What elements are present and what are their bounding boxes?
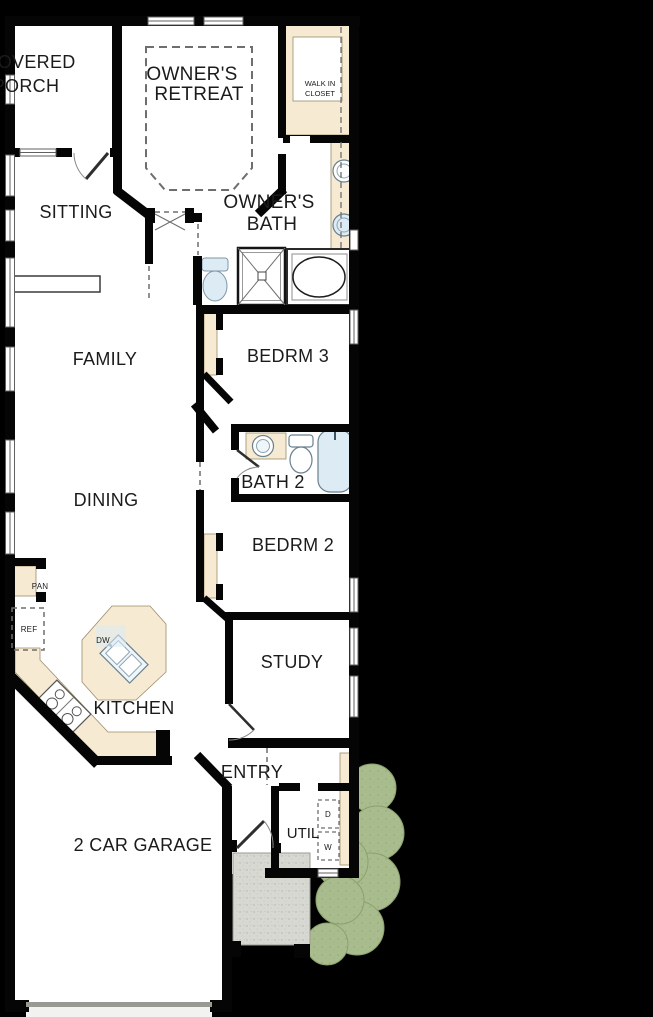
wall-right-upper [349, 16, 359, 310]
wall-retreat-left [113, 148, 122, 193]
wall-entry-top [228, 738, 359, 748]
bathtub-fixture [287, 249, 352, 305]
wall-util-left [271, 786, 279, 876]
wic-door-opening [290, 136, 310, 143]
room-label-covered-porch-line2: PORCH [0, 76, 59, 96]
wall-bath2-left-lower [231, 478, 239, 502]
room-label-owners-retreat-line1: OWNER'S [146, 64, 237, 85]
porch-step-left [227, 941, 241, 957]
wall-entry-bottom-left [222, 840, 237, 852]
media-console [12, 276, 100, 292]
room-label-owners-bath-line2: BATH [247, 214, 297, 235]
fixture-label-washer: W [324, 843, 332, 852]
wall-util-bottom [265, 868, 359, 878]
wall-wic-left-lower [278, 154, 286, 194]
wall-entry-bottom-right [271, 843, 281, 853]
wall-wic-left [278, 16, 286, 138]
wall-study-left [225, 612, 233, 704]
toilet-fixture [202, 258, 228, 301]
bush [306, 923, 348, 965]
wall-bedroom3-closet-top [216, 310, 223, 330]
room-label-owners-bath-line1: OWNER'S [223, 192, 314, 213]
floor-plan-drawing: COVERED PORCH OWNER'S RETREAT WALK IN CL… [0, 0, 653, 1017]
wall-bedroom2-closet-top [216, 533, 223, 551]
wall-hall-family-upper [196, 305, 204, 462]
shower-fixture [238, 248, 285, 305]
wall-bedroom2-closet-bottom [216, 584, 223, 600]
wall-garage-bottom-left [5, 1000, 29, 1012]
room-label-family: FAMILY [73, 349, 137, 369]
room-label-bedroom2: BEDRM 2 [252, 535, 334, 555]
room-label-kitchen: KITCHEN [93, 698, 174, 718]
wall-bath-west [193, 256, 202, 305]
wall-bath-west-top [193, 213, 202, 222]
bedroom2-closet [204, 534, 217, 598]
wall-kitchen-pillar [156, 730, 170, 765]
bath2-sink-icon [253, 436, 274, 457]
wall-bath2-left-upper [231, 424, 239, 450]
fixture-label-pantry: PAN [32, 582, 48, 591]
garage-door [26, 1002, 212, 1007]
wall-study-top [225, 612, 359, 620]
floor-plan-canvas: COVERED PORCH OWNER'S RETREAT WALK IN CL… [0, 0, 653, 1017]
driveway [26, 1006, 212, 1017]
bush [316, 876, 364, 924]
wall-right-util [349, 745, 359, 878]
room-label-owners-retreat-line2: RETREAT [154, 84, 243, 105]
wall-pantry-hook-top [36, 560, 46, 569]
wall-util-top-left [279, 783, 300, 791]
fixture-label-dryer: D [325, 810, 331, 819]
bedroom3-closet [204, 311, 217, 375]
wall-bath2-top [231, 424, 359, 432]
room-label-dining: DINING [74, 490, 139, 510]
wall-util-top-right [318, 783, 357, 791]
room-label-study: STUDY [261, 652, 324, 672]
wall-bedroom3-closet-bottom [216, 358, 223, 375]
room-label-util: UTIL [287, 825, 320, 842]
wall-sitting-2 [56, 148, 72, 157]
room-label-bath2: BATH 2 [241, 472, 304, 492]
room-label-covered-porch-line1: COVERED [0, 52, 76, 72]
floor-areas [10, 20, 356, 1017]
fixture-label-refrigerator: REF [21, 625, 38, 634]
wall-garage-bottom-right [210, 1000, 232, 1012]
room-label-entry: ENTRY [221, 762, 283, 782]
fixture-label-dishwasher: DW [96, 636, 110, 645]
wall-garage-right [222, 786, 232, 1012]
wall-bath2-bottom [231, 494, 359, 502]
wall-hall-family-lower [196, 490, 204, 602]
room-label-sitting: SITTING [39, 202, 112, 222]
wall-hall-sitting [145, 216, 153, 264]
room-label-walk-in-closet-line1: WALK IN [305, 79, 336, 88]
wall-retreat-door-jamb-right [185, 208, 194, 223]
bath2-toilet-fixture [289, 435, 313, 473]
room-label-garage: 2 CAR GARAGE [74, 835, 213, 855]
porch-step-right [294, 944, 310, 958]
room-label-bedroom3: BEDRM 3 [247, 346, 329, 366]
wall-pantry-hook-bottom [36, 592, 46, 602]
wall-porch-divider [112, 16, 122, 157]
room-label-walk-in-closet-line2: CLOSET [305, 89, 335, 98]
window [350, 230, 358, 250]
